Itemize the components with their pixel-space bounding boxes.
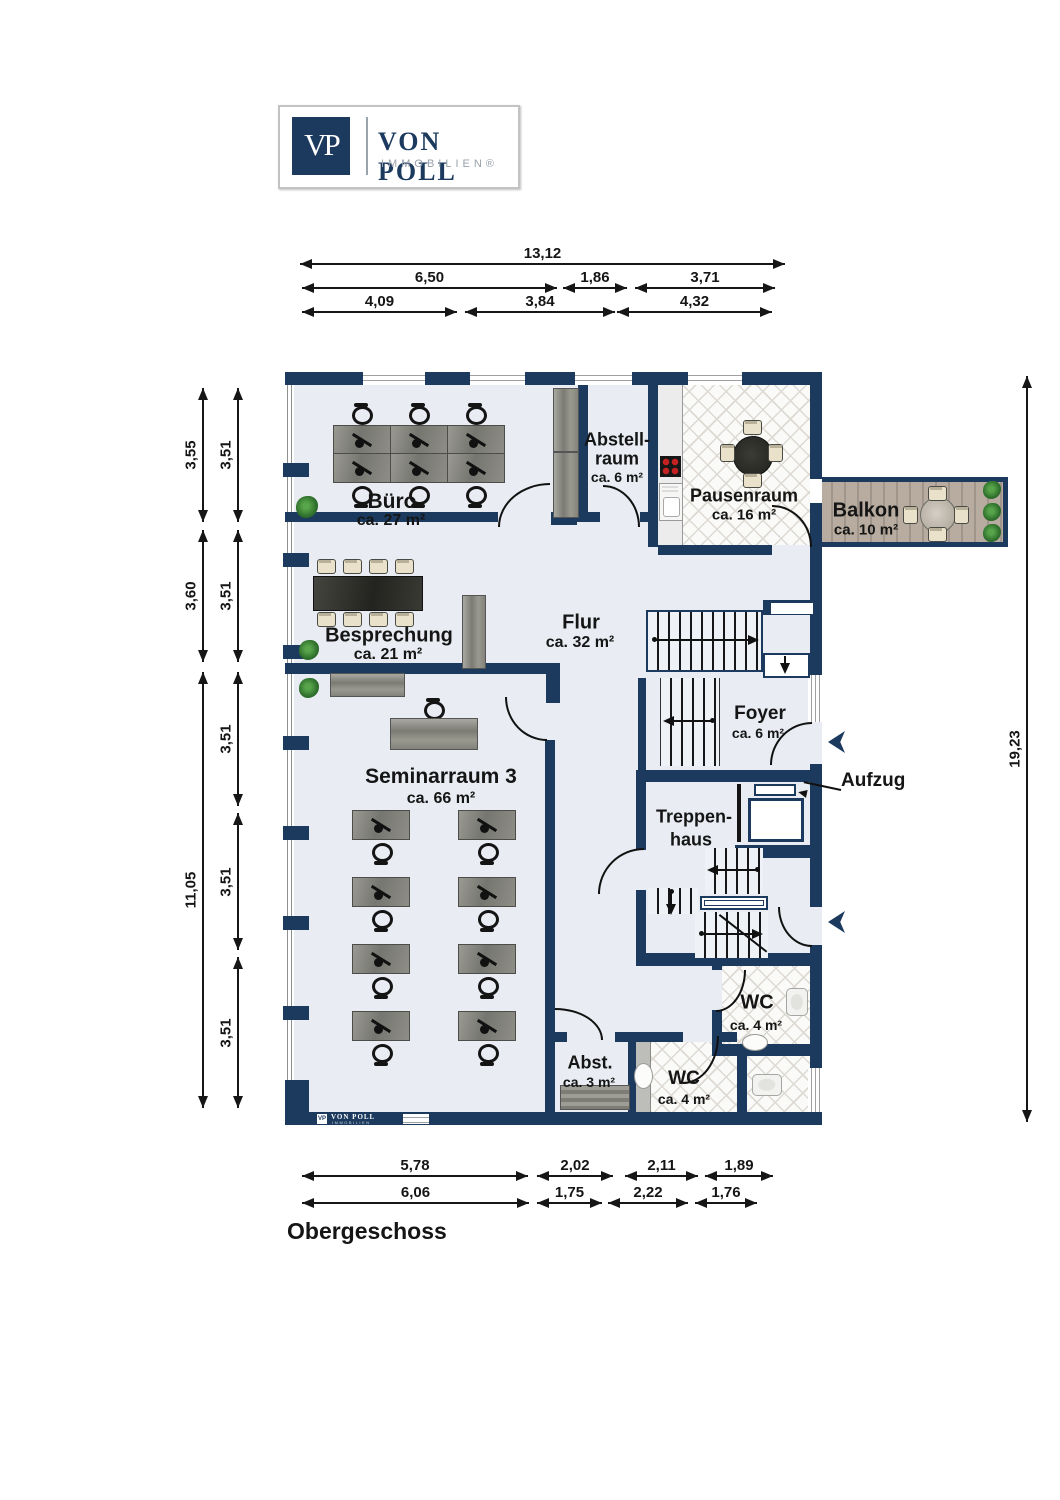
dim-top-650: 6,50 — [302, 287, 557, 289]
stair-arrow-line — [672, 720, 712, 722]
label-foyer-area: ca. 6 m² — [732, 725, 784, 741]
chair — [743, 420, 762, 435]
dim-left-351b: 3,51 — [237, 530, 239, 662]
desk — [333, 425, 391, 455]
chair — [466, 406, 487, 425]
dim-left-1105: 11,05 — [202, 672, 204, 1108]
dim-right-1923: 19,23 — [1026, 376, 1028, 1122]
desk — [458, 877, 516, 907]
wall-seminar-right — [545, 740, 555, 1112]
desk — [390, 453, 448, 483]
label-seminarraum-area: ca. 66 m² — [407, 790, 475, 808]
balkon-door-opening — [810, 479, 822, 503]
logo-brand-subtitle: IMMOBILIEN® — [381, 158, 498, 170]
wall-left-stub — [283, 916, 309, 930]
chair — [372, 843, 393, 862]
stair-arrow-line — [716, 869, 758, 871]
label-besprechung-area: ca. 21 m² — [354, 646, 422, 664]
label-abst: Abst. — [568, 1053, 613, 1074]
pausenraum-table — [733, 436, 773, 476]
desk — [352, 944, 410, 974]
stair-arrow-head — [752, 929, 763, 939]
abstell-cabinet — [553, 452, 579, 518]
chair — [317, 559, 336, 574]
chair — [352, 406, 373, 425]
dim-bottom-202: 2,02 — [537, 1175, 613, 1177]
window-bottom-wall — [403, 1114, 429, 1124]
wall-wc-nook-divider — [737, 1056, 747, 1112]
wall-foyer-left — [638, 678, 646, 770]
chair — [478, 977, 499, 996]
chair — [409, 406, 430, 425]
chair — [369, 559, 388, 574]
label-flur-area: ca. 32 m² — [546, 634, 614, 652]
window-top-1 — [363, 372, 425, 385]
balkon-chair — [928, 527, 947, 542]
abstell-cabinet — [553, 388, 579, 452]
desk — [352, 877, 410, 907]
balkon-chair — [954, 506, 969, 524]
desk — [352, 810, 410, 840]
wall-left-stub — [283, 1006, 309, 1020]
dim-bottom-176: 1,76 — [695, 1202, 757, 1204]
desk — [333, 453, 391, 483]
stair-run-upper — [646, 610, 763, 672]
dim-top-384: 3,84 — [465, 311, 615, 313]
desk — [447, 453, 505, 483]
label-balkon-area: ca. 10 m² — [834, 522, 898, 539]
floor-title: Obergeschoss — [287, 1218, 447, 1245]
chair — [395, 559, 414, 574]
wall-treppenhaus-left-a — [636, 770, 646, 850]
wall-corridor-wc-b — [615, 1032, 683, 1042]
balkon-chair — [928, 486, 947, 501]
dim-bottom-606: 6,06 — [302, 1202, 529, 1204]
stair-arrow-dot — [710, 718, 715, 723]
label-besprechung: Besprechung — [325, 625, 453, 648]
dim-bottom-222: 2,22 — [608, 1202, 688, 1204]
label-wc-unten: WC — [668, 1068, 700, 1090]
wall-pillar-seminar-door — [546, 663, 560, 703]
dim-bottom-211: 2,11 — [625, 1175, 698, 1177]
wall-left-stub — [283, 463, 309, 477]
dim-left-355: 3,55 — [202, 388, 204, 522]
chair — [343, 559, 362, 574]
label-treppenhaus-1: Treppen- — [656, 807, 732, 828]
wall-wc-zone — [712, 1044, 822, 1056]
wall-besprechung-bottom — [285, 663, 560, 674]
label-pausenraum: Pausenraum — [690, 486, 798, 507]
stair-landing-rail-inner — [704, 900, 764, 906]
stair-down-head — [780, 663, 790, 674]
label-buero-area: ca. 27 m² — [357, 512, 425, 530]
entry-arrow-foyer — [828, 731, 845, 753]
dim-top-371: 3,71 — [635, 287, 775, 289]
toilet — [752, 1074, 782, 1096]
wall-treppenhaus-top — [636, 770, 822, 782]
window-top-3 — [575, 372, 632, 385]
chair — [720, 444, 735, 462]
desk — [458, 1011, 516, 1041]
entry-arrow-stairwell — [828, 911, 845, 933]
dim-left-351d: 3,51 — [237, 813, 239, 950]
label-abst-area: ca. 3 m² — [563, 1074, 615, 1090]
aufzug-pointer-head — [797, 788, 807, 798]
floorplan-sheet: VP VON POLL IMMOBILIEN® 13,12 6,50 1,86 … — [0, 0, 1060, 1500]
logo-initials: VP — [304, 127, 338, 162]
stair-arrow-line — [702, 933, 754, 935]
chair — [372, 1044, 393, 1063]
dim-bottom-578: 5,78 — [302, 1175, 528, 1177]
chair — [478, 843, 499, 862]
window-bottom-right — [808, 1068, 824, 1112]
label-buero: Büro — [368, 490, 417, 514]
elevator-cab — [748, 798, 804, 842]
sink — [742, 1034, 768, 1051]
label-wc-unten-area: ca. 4 m² — [658, 1091, 710, 1107]
elevator-door-line — [737, 784, 741, 842]
window-top-2 — [470, 372, 525, 385]
dim-left-351e: 3,51 — [237, 957, 239, 1108]
dim-bottom-189: 1,89 — [705, 1175, 773, 1177]
dim-left-360: 3,60 — [202, 530, 204, 662]
elevator-counterweight — [754, 784, 796, 796]
stove — [660, 456, 681, 477]
desk — [447, 425, 505, 455]
sink — [634, 1063, 653, 1089]
window-top-4 — [688, 372, 742, 385]
label-treppenhaus-2: haus — [670, 830, 712, 851]
logo-vp-square: VP — [292, 117, 350, 175]
label-wc-og: WC — [740, 992, 773, 1015]
label-abstellraum-2: raum — [595, 449, 639, 470]
label-flur: Flur — [562, 612, 600, 635]
flur-cabinet — [462, 595, 486, 669]
chair — [478, 1044, 499, 1063]
label-balkon: Balkon — [833, 500, 900, 523]
vonpoll-logo: VP VON POLL IMMOBILIEN® — [278, 105, 520, 189]
stair-arrow-head — [748, 635, 759, 645]
dim-bottom-175: 1,75 — [537, 1202, 602, 1204]
dim-top-total: 13,12 — [300, 263, 785, 265]
label-wc-og-area: ca. 4 m² — [730, 1017, 782, 1033]
wall-corridor-wc-c — [720, 1032, 737, 1042]
dim-top-409: 4,09 — [302, 311, 457, 313]
foyer-niche-box — [770, 602, 814, 615]
kitchen-sink-unit — [659, 483, 683, 521]
conference-table — [313, 576, 423, 611]
chair — [466, 486, 487, 505]
label-pausenraum-area: ca. 16 m² — [712, 507, 776, 524]
dim-left-351a: 3,51 — [237, 388, 239, 522]
watermark-subtitle: IMMOBILIEN — [332, 1120, 371, 1125]
chair — [478, 910, 499, 929]
label-abstellraum-area: ca. 6 m² — [591, 469, 643, 485]
chair — [768, 444, 783, 462]
chair — [372, 977, 393, 996]
stair-arrow-line — [654, 639, 750, 641]
sideboard — [330, 673, 405, 697]
label-foyer: Foyer — [734, 703, 786, 725]
logo-brand-name: VON POLL — [378, 127, 518, 187]
wall-pausen-bottom — [658, 545, 772, 555]
desk — [458, 810, 516, 840]
desk — [352, 1011, 410, 1041]
toilet — [786, 988, 808, 1016]
label-aufzug: Aufzug — [841, 770, 905, 792]
logo-divider — [366, 117, 368, 175]
desk — [458, 944, 516, 974]
wall-left-stub — [283, 553, 309, 567]
stair-arrow-dot — [755, 867, 760, 872]
presenter-desk — [390, 718, 478, 750]
window-foyer — [808, 675, 824, 722]
dim-left-351c: 3,51 — [237, 672, 239, 806]
stair-down-head — [666, 904, 676, 915]
label-abstellraum-1: Abstell- — [584, 430, 650, 451]
dim-top-432: 4,32 — [617, 311, 772, 313]
wall-left-stub — [283, 736, 309, 750]
wall-abstell-kitchen — [648, 385, 658, 547]
watermark-vp-square: VP — [317, 1114, 327, 1124]
desk — [390, 425, 448, 455]
wall-left-stub — [283, 826, 309, 840]
dim-top-186: 1,86 — [563, 287, 627, 289]
chair — [372, 910, 393, 929]
label-seminarraum: Seminarraum 3 — [365, 765, 517, 789]
balkon-chair — [903, 506, 918, 524]
